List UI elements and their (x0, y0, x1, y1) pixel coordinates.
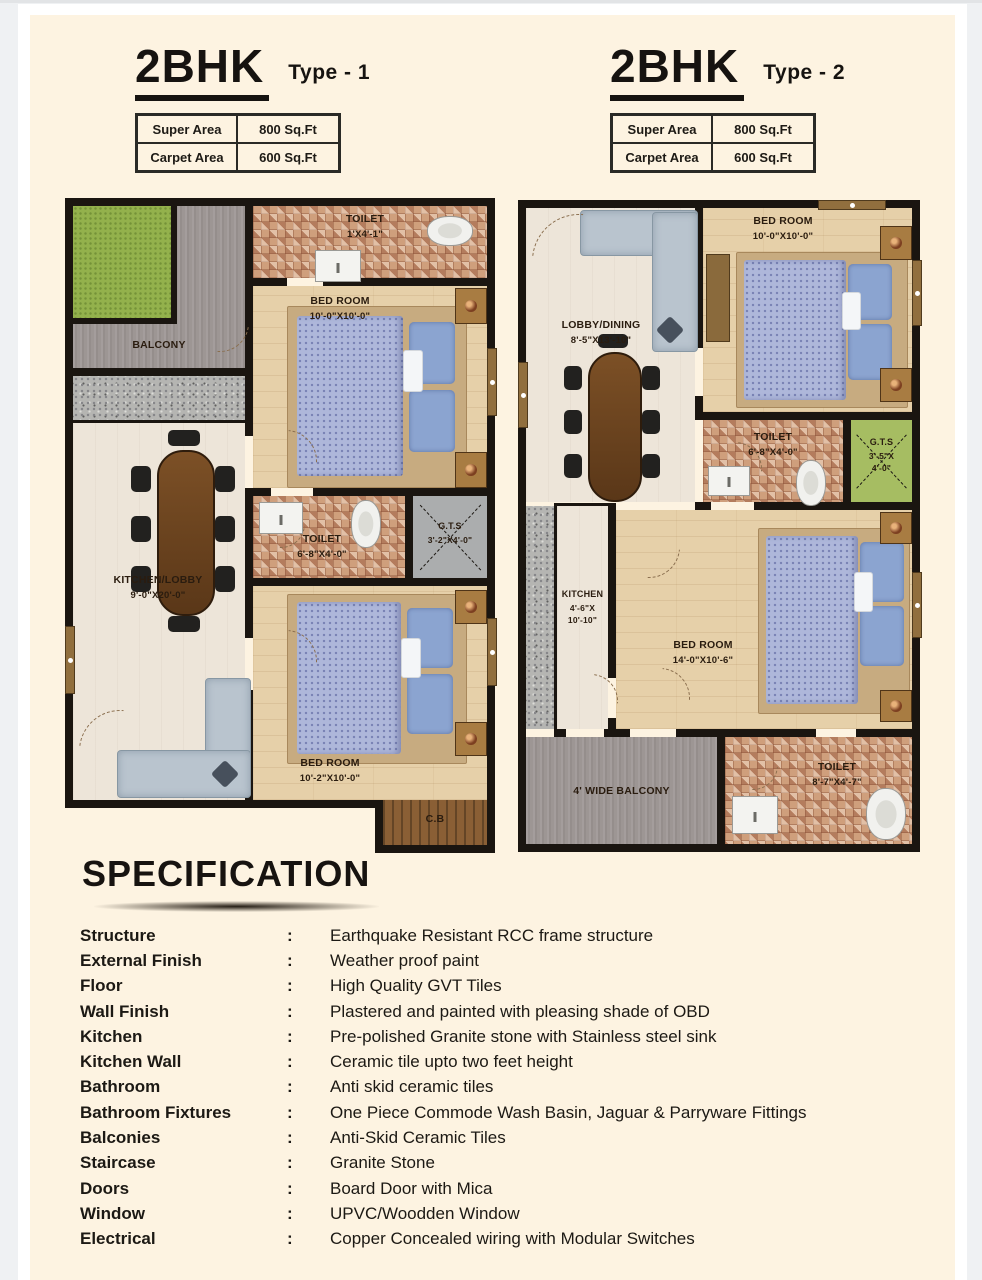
floor-plan-type-2: BED ROOM 10'-0"X10'-0" LOBBY/DINING 8'-5… (518, 200, 920, 852)
wall (375, 800, 383, 853)
area-table-label: Carpet Area (612, 143, 712, 171)
top-edge-strip (0, 0, 982, 3)
wall (518, 844, 920, 852)
wall (604, 729, 630, 737)
wall (856, 729, 912, 737)
chair (131, 516, 151, 542)
wall (65, 198, 495, 206)
chair (642, 366, 660, 390)
wc-icon (796, 460, 826, 506)
wall (554, 503, 616, 506)
room-label-lobby-dining: LOBBY/DINING 8'-5"X13'-10" (536, 318, 666, 348)
area-table-value: 800 Sq.Ft (237, 115, 339, 143)
sink-icon (732, 796, 778, 834)
sink-icon (708, 466, 750, 496)
plan1-title: 2BHK (135, 43, 264, 89)
bedside-table (455, 288, 487, 324)
wall (65, 198, 73, 808)
wall (717, 737, 725, 844)
bedside-table (880, 226, 912, 260)
room-label-toilet-bottom: TOILET 8'-7"X4'-7" (776, 760, 898, 790)
spec-row: Structure:Earthquake Resistant RCC frame… (80, 923, 948, 948)
bedside-table (880, 512, 912, 544)
wall (487, 198, 495, 853)
spec-row: Electrical:Copper Concealed wiring with … (80, 1227, 948, 1252)
room-label-balcony: 4' WIDE BALCONY (526, 784, 717, 800)
specification-heading: SPECIFICATION (82, 853, 370, 895)
bedside-table (455, 722, 487, 756)
wall (313, 488, 487, 496)
wall (754, 502, 920, 510)
wall (676, 729, 816, 737)
window-marker (912, 572, 922, 638)
plan2-header: 2BHK Type - 2 (610, 43, 845, 89)
window-marker (818, 200, 886, 210)
wall (65, 800, 383, 808)
wall (554, 729, 566, 737)
specification-list: Structure:Earthquake Resistant RCC frame… (80, 923, 948, 1252)
plan2-title-underline (610, 95, 744, 101)
wall (253, 278, 287, 286)
room-label-toilet-mid: TOILET 6'-8"X4'-0" (257, 532, 387, 562)
specification-underline (94, 901, 379, 912)
window-marker (487, 348, 497, 416)
wall (843, 412, 851, 510)
wall (245, 488, 253, 638)
wall (695, 502, 711, 510)
room-label-bedroom-main: BED ROOM 14'-0"X10'-6" (628, 638, 778, 668)
bedside-table (455, 590, 487, 624)
spec-row: Window:UPVC/Woodden Window (80, 1201, 948, 1226)
wall (608, 503, 616, 678)
area-table-value: 800 Sq.Ft (712, 115, 814, 143)
bedside-table (455, 452, 487, 488)
grass-patch (73, 206, 177, 324)
plan1-title-underline (135, 95, 269, 101)
granite-strip (526, 506, 554, 729)
spec-row: Staircase:Granite Stone (80, 1151, 948, 1176)
wall (375, 845, 495, 853)
chair (168, 616, 200, 632)
area-table-label: Carpet Area (137, 143, 237, 171)
sink-icon (315, 250, 361, 282)
chair (215, 516, 235, 542)
bedside-table (880, 368, 912, 402)
plan2-area-table: Super Area 800 Sq.Ft Carpet Area 600 Sq.… (610, 113, 816, 173)
spec-row: Bathroom:Anti skid ceramic tiles (80, 1075, 948, 1100)
window-marker (912, 260, 922, 326)
wall (518, 200, 526, 852)
plan2-type-label: Type - 2 (763, 61, 845, 85)
chair (564, 410, 582, 434)
spec-row: Wall Finish:Plastered and painted with p… (80, 999, 948, 1024)
room-label-toilet-top: TOILET 1'X4'-1" (305, 212, 425, 242)
wall (253, 488, 271, 496)
wall (695, 396, 703, 412)
wall (65, 368, 253, 376)
wall (73, 420, 245, 423)
area-table-value: 600 Sq.Ft (712, 143, 814, 171)
chair (564, 366, 582, 390)
spec-row: Doors:Board Door with Mica (80, 1176, 948, 1201)
floor-plan-type-1: BALCONY TOILET 1'X4'-1" BED ROOM 10'-0"X… (65, 198, 495, 858)
room-label-kitchen-lobby: KITCHEN/LOBBY 9'-0"X20'-0" (83, 573, 233, 603)
wc-icon (866, 788, 906, 840)
room-label-gts: G.T.S 3'-2"X4'-0" (413, 520, 487, 546)
chair (131, 466, 151, 492)
plan1-header: 2BHK Type - 1 (135, 43, 370, 89)
room-label-balcony: BALCONY (73, 338, 245, 354)
spec-row: Kitchen Wall:Ceramic tile upto two feet … (80, 1049, 948, 1074)
brochure-page: 2BHK Type - 1 Super Area 800 Sq.Ft Carpe… (30, 15, 955, 1280)
room-label-gts: G.T.S 3'-5"X 4'-0" (851, 436, 912, 475)
bedside-table (880, 690, 912, 722)
window-marker (487, 618, 497, 686)
sink-icon (259, 502, 303, 534)
window-marker (518, 362, 528, 428)
plan1-area-table: Super Area 800 Sq.Ft Carpet Area 600 Sq.… (135, 113, 341, 173)
spec-row: External Finish:Weather proof paint (80, 948, 948, 973)
room-label-bedroom-top: BED ROOM 10'-0"X10'-0" (275, 294, 405, 324)
dining-table (588, 352, 642, 502)
chair (642, 410, 660, 434)
room-label-kitchen: KITCHEN 4'-6"X 10'-10" (557, 588, 608, 627)
window-marker (65, 626, 75, 694)
granite-strip (73, 376, 245, 420)
spec-row: Kitchen:Pre-polished Granite stone with … (80, 1024, 948, 1049)
room-label-cupboard: C.B (383, 812, 487, 828)
wc-icon (427, 216, 473, 246)
room-label-bedroom-top: BED ROOM 10'-0"X10'-0" (718, 214, 848, 244)
dresser (706, 254, 730, 342)
area-table-label: Super Area (612, 115, 712, 143)
plan2-title: 2BHK (610, 43, 739, 89)
chair (642, 454, 660, 478)
chair (215, 466, 235, 492)
wall (253, 578, 487, 586)
wall (405, 488, 413, 586)
spec-row: Floor:High Quality GVT Tiles (80, 974, 948, 999)
spec-row: Bathroom Fixtures:One Piece Commode Wash… (80, 1100, 948, 1125)
chair (168, 430, 200, 446)
room-label-bedroom-bottom: BED ROOM 10'-2"X10'-0" (260, 756, 400, 786)
area-table-value: 600 Sq.Ft (237, 143, 339, 171)
spec-row: Balconies:Anti-Skid Ceramic Tiles (80, 1125, 948, 1150)
area-table-label: Super Area (137, 115, 237, 143)
wall (695, 412, 920, 420)
chair (564, 454, 582, 478)
room-label-toilet-mid: TOILET 6'-8"X4'-0" (710, 430, 836, 460)
plan1-type-label: Type - 1 (288, 61, 370, 85)
